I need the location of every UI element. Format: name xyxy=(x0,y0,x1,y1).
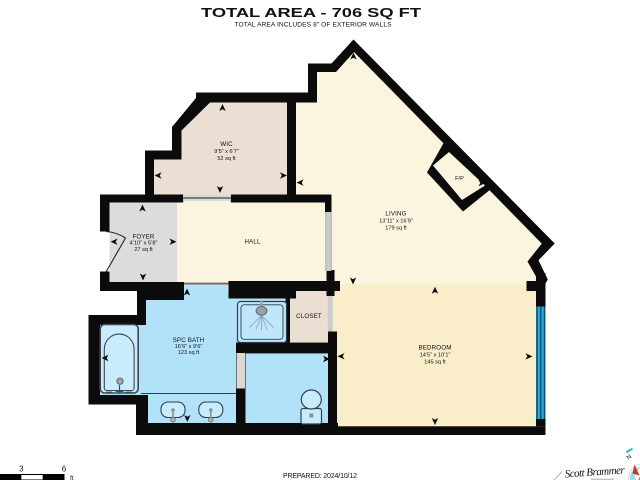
svg-text:BEDROOM: BEDROOM xyxy=(418,345,451,352)
svg-text:PREPARED: 2024/10/12: PREPARED: 2024/10/12 xyxy=(283,473,357,480)
svg-text:145 sq ft: 145 sq ft xyxy=(424,360,446,366)
svg-text:4’10” x 5’8”: 4’10” x 5’8” xyxy=(130,241,158,247)
svg-text:HALL: HALL xyxy=(244,239,260,246)
svg-text:179 sq ft: 179 sq ft xyxy=(385,226,407,232)
svg-text:16’6” x 9’6”: 16’6” x 9’6” xyxy=(175,344,203,350)
svg-text:14’5” x 10’1”: 14’5” x 10’1” xyxy=(420,353,451,359)
svg-text:ft: ft xyxy=(70,475,74,480)
svg-text:WIC: WIC xyxy=(220,141,233,148)
svg-text:F/P: F/P xyxy=(455,176,464,182)
svg-text:27 sq ft: 27 sq ft xyxy=(134,247,153,253)
svg-text:13’11” x 16’9”: 13’11” x 16’9” xyxy=(379,219,413,225)
svg-text:3: 3 xyxy=(19,465,24,474)
svg-text:SPC BATH: SPC BATH xyxy=(173,337,205,344)
svg-text:9’5” x 6’7”: 9’5” x 6’7” xyxy=(214,149,239,155)
svg-text:123 sq ft: 123 sq ft xyxy=(178,350,200,356)
svg-text:CLOSET: CLOSET xyxy=(296,313,322,320)
svg-text:FOYER: FOYER xyxy=(132,234,154,241)
svg-text:6: 6 xyxy=(62,465,67,474)
svg-text:LIVING: LIVING xyxy=(385,211,406,218)
svg-text:TOTAL AREA INCLUDES 8” OF EXTE: TOTAL AREA INCLUDES 8” OF EXTERIOR WALLS xyxy=(235,21,393,28)
svg-text:52 sq ft: 52 sq ft xyxy=(217,156,236,162)
svg-text:TOTAL AREA - 706 SQ FT: TOTAL AREA - 706 SQ FT xyxy=(201,5,421,20)
